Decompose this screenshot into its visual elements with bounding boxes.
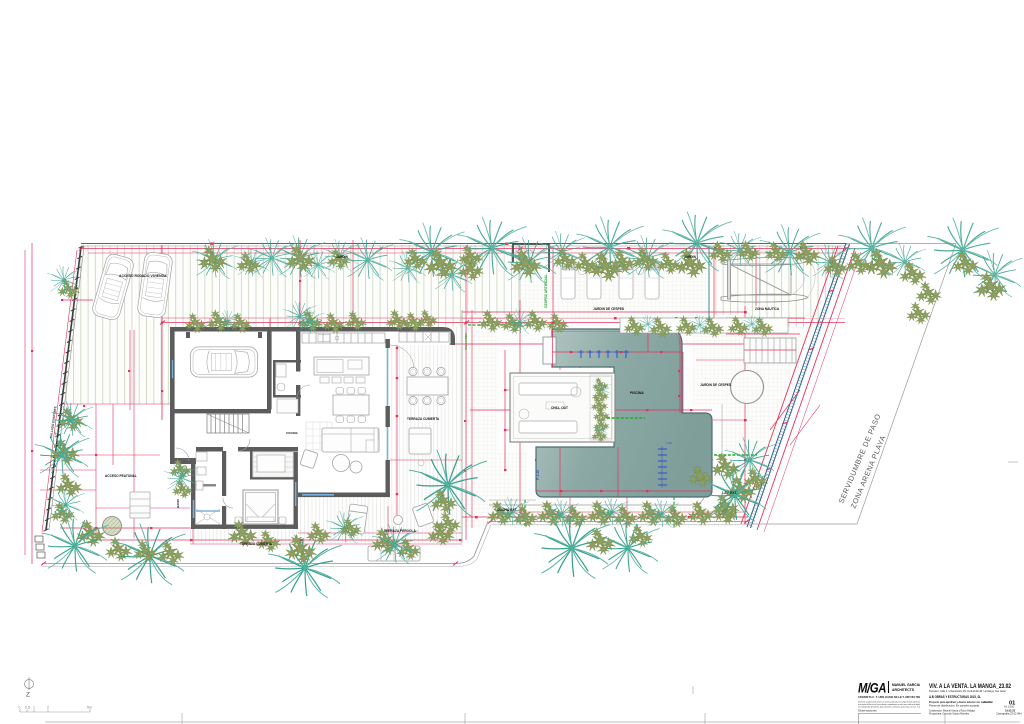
svg-text:Observaciones: Observaciones [858,709,877,713]
svg-text:A3 1/100: A3 1/100 [1004,705,1015,708]
svg-text:Parcela 2, Calle 2, Urbanizaci: Parcela 2, Calle 2, Urbanizacion M1, Ped… [929,690,1006,693]
svg-text:1: 1 [33,706,35,710]
svg-text:DUCHA EXT.: DUCHA EXT. [497,508,518,512]
svg-text:Cianografia 23.02 WH: Cianografia 23.02 WH [996,712,1022,716]
svg-text:0: 0 [19,706,21,710]
svg-text:ZONA NAUTICA: ZONA NAUTICA [755,307,780,311]
svg-text:LAV. EXT.: LAV. EXT. [722,491,738,495]
svg-text:TERRAZA PERGOLA: TERRAZA PERGOLA [384,529,416,533]
svg-text:TERRAZA CUBIERTA: TERRAZA CUBIERTA [240,542,273,546]
svg-text:A.B OBRAS Y ESTRUCTURAS 2015,: A.B OBRAS Y ESTRUCTURAS 2015, SL [929,695,981,699]
svg-text:CHILL OUT: CHILL OUT [551,406,568,410]
svg-text:0.5: 0.5 [25,706,30,710]
svg-text:Z: Z [26,692,30,699]
svg-text:MANUEL GARCIA: MANUEL GARCIA [892,683,921,687]
svg-text:1.00: 1.00 [666,441,672,445]
svg-text:Proyectista: Gonzalo Garcia Mo: Proyectista: Gonzalo Garcia Morales [929,712,970,716]
svg-text:ACCESO RODADO VIVIENDA: ACCESO RODADO VIVIENDA [119,274,167,278]
svg-text:JARDIN DE CESPED: JARDIN DE CESPED [700,383,732,387]
svg-text:P:1.40: P:1.40 [536,470,540,480]
svg-text:JARDIN: JARDIN [336,255,349,259]
svg-text:COCINA: COCINA [286,431,299,435]
svg-text:JARDIN: JARDIN [684,255,697,259]
svg-text:VALLA SEP.: VALLA SEP. [464,333,468,350]
svg-text:CRONISTA C. T. URB OASIS N21-: CRONISTA C. T. URB OASIS N21-B T. 968 56… [858,695,920,699]
svg-text:PISCINA: PISCINA [630,391,644,395]
svg-text:ARCHITECTS: ARCHITECTS [892,688,915,692]
svg-text:2: 2 [47,706,49,710]
svg-text:CESPED ARTIFICIAL: CESPED ARTIFICIAL [544,274,548,308]
svg-text:M/GA: M/GA [858,680,886,696]
svg-text:BANO: BANO [176,499,180,508]
svg-text:5m: 5m [87,706,92,710]
svg-text:ACCESO PEATONAL: ACCESO PEATONAL [105,474,137,478]
svg-text:Planta de distribucion. En par: Planta de distribucion. En parcela acota… [929,704,980,708]
svg-text:JARDIN DE CESPED: JARDIN DE CESPED [593,307,625,311]
svg-text:TERRAZA CUBIERTA: TERRAZA CUBIERTA [407,417,440,421]
svg-text:plano n.: plano n. [983,701,992,704]
